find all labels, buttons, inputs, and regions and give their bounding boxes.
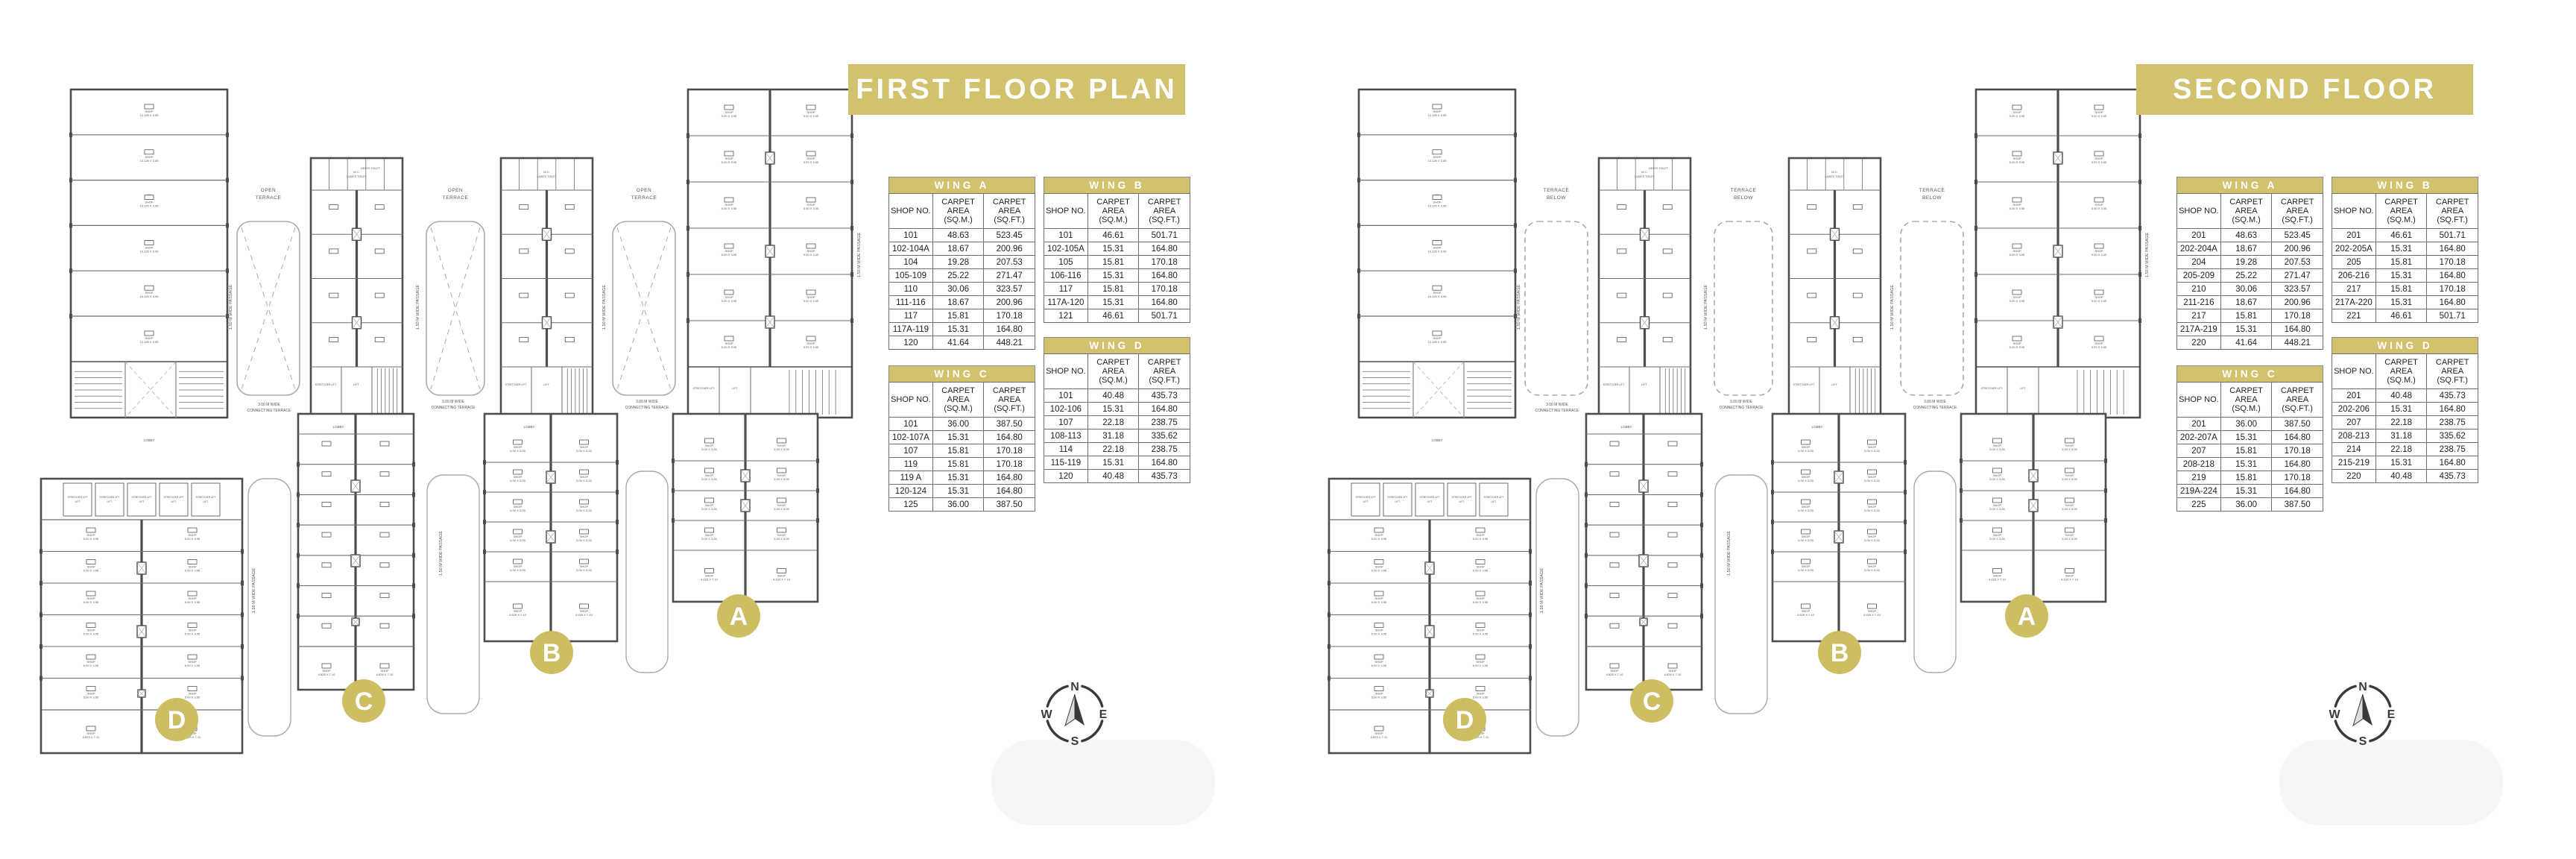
svg-text:OPEN: OPEN: [637, 188, 651, 193]
shop-cell: 271.47: [984, 269, 1035, 283]
svg-text:5.00 X 3.05: 5.00 X 3.05: [2092, 299, 2107, 303]
svg-text:5.00 X 3.05: 5.00 X 3.05: [185, 569, 201, 573]
shop-cell: 15.31: [2375, 296, 2427, 309]
svg-text:5.00 X 3.05: 5.00 X 3.05: [83, 664, 99, 667]
svg-text:5.00 X 3.05: 5.00 X 3.05: [185, 537, 201, 541]
shop-cell: 238.75: [1139, 443, 1190, 456]
svg-text:STRETCHER LIFT: STRETCHER LIFT: [164, 496, 184, 499]
column-header: CARPET AREA (SQ.M.): [932, 383, 984, 418]
svg-text:3.00 M WIDE: 3.00 M WIDE: [636, 400, 658, 404]
shop-cell: 117: [889, 309, 933, 323]
shop-cell: 219: [2177, 471, 2221, 485]
column-header: CARPET AREA (SQ.M.): [1087, 194, 1139, 229]
wing-b-table: WING BSHOP NO.CARPET AREA (SQ.M.)CARPET …: [2332, 177, 2478, 323]
column-header: CARPET AREA (SQ.FT.): [2272, 383, 2323, 418]
shop-cell: 501.71: [2427, 309, 2478, 323]
shop-cell: 15.31: [2220, 458, 2272, 471]
shop-cell: 217: [2177, 309, 2221, 323]
svg-text:4.625 X 7.10: 4.625 X 7.10: [1664, 673, 1682, 676]
shop-row: 202-204A18.67200.96: [2177, 242, 2323, 256]
wing-c-table: WING CSHOP NO.CARPET AREA (SQ.M.)CARPET …: [2176, 365, 2323, 512]
svg-text:5.00 X 3.05: 5.00 X 3.05: [576, 449, 592, 453]
shop-cell: 221: [2332, 309, 2376, 323]
shop-cell: 164.80: [984, 431, 1035, 444]
shop-cell: 200.96: [2272, 296, 2323, 309]
shop-row: 10515.81170.18: [1044, 256, 1190, 269]
shop-cell: 164.80: [2427, 403, 2478, 416]
shop-row: 202-207A15.31164.80: [2177, 431, 2323, 444]
svg-text:D: D: [1456, 706, 1474, 734]
svg-text:TERRACE: TERRACE: [1919, 188, 1945, 193]
column-header: SHOP NO.: [2332, 194, 2376, 229]
shop-cell: 211-216: [2177, 296, 2221, 309]
shop-cell: 15.31: [1087, 296, 1139, 309]
shop-cell: 18.67: [932, 296, 984, 309]
shop-cell: 164.80: [984, 323, 1035, 336]
shop-cell: 30.06: [932, 283, 984, 296]
shop-cell: 19.28: [932, 256, 984, 269]
shop-row: 119 A15.31164.80: [889, 471, 1035, 485]
shop-cell: 238.75: [2427, 443, 2478, 456]
svg-text:S: S: [2359, 735, 2367, 748]
svg-text:A: A: [730, 602, 748, 631]
svg-text:STRETCHER LIFT: STRETCHER LIFT: [196, 496, 216, 499]
svg-text:10.125 X 3.05: 10.125 X 3.05: [1428, 159, 1448, 163]
svg-text:1.50 M WIDE PASSAGE: 1.50 M WIDE PASSAGE: [602, 285, 607, 330]
svg-text:5.00 X 3.05: 5.00 X 3.05: [774, 477, 789, 481]
shop-row: 20419.28207.53: [2177, 256, 2323, 269]
svg-text:5.00 X 3.05: 5.00 X 3.05: [1864, 538, 1880, 542]
shop-cell: 201: [2177, 229, 2221, 242]
shop-cell: 22.18: [1087, 416, 1139, 429]
svg-text:TERRACE: TERRACE: [1544, 188, 1570, 193]
shop-row: 12041.64448.21: [889, 336, 1035, 350]
shop-row: 20148.63523.45: [2177, 229, 2323, 242]
shop-cell: 110: [889, 283, 933, 296]
svg-text:5.00 X 3.05: 5.00 X 3.05: [1989, 447, 2005, 451]
column-header: CARPET AREA (SQ.FT.): [2427, 354, 2478, 389]
svg-text:5.00 X 3.05: 5.00 X 3.05: [774, 447, 789, 451]
shop-row: 102-107A15.31164.80: [889, 431, 1035, 444]
svg-text:TERRACE: TERRACE: [443, 195, 469, 201]
svg-text:5.00 X 3.05: 5.00 X 3.05: [2092, 114, 2107, 118]
svg-text:5.00 X 3.05: 5.00 X 3.05: [804, 345, 819, 349]
shop-row: 11715.81170.18: [1044, 283, 1190, 296]
shop-cell: 164.80: [2427, 456, 2478, 470]
shop-cell: 501.71: [2427, 229, 2478, 242]
shop-row: 21915.81170.18: [2177, 471, 2323, 485]
column-header: SHOP NO.: [889, 383, 933, 418]
svg-text:5.00 X 3.05: 5.00 X 3.05: [510, 449, 525, 453]
svg-text:LIFT: LIFT: [107, 500, 113, 503]
wing-table-title: WING D: [1044, 337, 1190, 353]
shop-cell: 164.80: [1139, 269, 1190, 283]
shop-cell: 115-119: [1044, 456, 1088, 470]
shop-cell: 15.31: [1087, 403, 1139, 416]
svg-text:5.00 X 3.05: 5.00 X 3.05: [722, 299, 737, 303]
svg-text:LOBBY: LOBBY: [523, 425, 534, 429]
shop-cell: 208-213: [2332, 429, 2376, 443]
wing-marker: D: [1443, 698, 1486, 741]
shop-cell: 170.18: [2427, 283, 2478, 296]
shop-row: 217A-21915.31164.80: [2177, 323, 2323, 336]
shop-cell: 207: [2177, 444, 2221, 458]
shop-row: 10140.48435.73: [1044, 389, 1190, 403]
shop-row: 21715.81170.18: [2177, 309, 2323, 323]
shop-cell: 107: [1044, 416, 1088, 429]
shop-cell: 107: [889, 444, 933, 458]
shop-cell: 501.71: [1139, 229, 1190, 242]
shop-cell: 435.73: [1139, 470, 1190, 483]
svg-text:5.00 X 3.05: 5.00 X 3.05: [722, 114, 737, 118]
svg-text:10.125 X 3.05: 10.125 X 3.05: [140, 249, 160, 253]
shop-cell: 164.80: [1139, 456, 1190, 470]
svg-text:5.00 X 3.05: 5.00 X 3.05: [2092, 345, 2107, 349]
shop-cell: 164.80: [2427, 269, 2478, 283]
svg-text:LIFT: LIFT: [1427, 500, 1433, 503]
shop-row: 20140.48435.73: [2332, 389, 2478, 403]
svg-text:A: A: [2018, 602, 2036, 631]
shop-cell: 40.48: [2375, 470, 2427, 483]
svg-text:4.625 X 7.10: 4.625 X 7.10: [1989, 578, 2006, 582]
shop-row: 10419.28207.53: [889, 256, 1035, 269]
svg-text:5.00 X 3.05: 5.00 X 3.05: [1798, 509, 1813, 512]
shop-row: 208-21815.31164.80: [2177, 458, 2323, 471]
shop-cell: 170.18: [2272, 471, 2323, 485]
svg-text:4.625 X 7.10: 4.625 X 7.10: [575, 613, 593, 617]
svg-text:4.625 X 7.10: 4.625 X 7.10: [376, 673, 394, 676]
shop-cell: 202-207A: [2177, 431, 2221, 444]
shop-cell: 387.50: [2272, 418, 2323, 431]
shop-cell: 15.31: [2220, 323, 2272, 336]
svg-text:3.00 M WIDE: 3.00 M WIDE: [258, 403, 280, 407]
shop-cell: 102-105A: [1044, 242, 1088, 256]
svg-text:STRETCHER LIFT: STRETCHER LIFT: [1603, 383, 1625, 386]
column-header: CARPET AREA (SQ.M.): [932, 194, 984, 229]
shop-cell: 31.18: [1087, 429, 1139, 443]
svg-text:LIFT: LIFT: [1459, 500, 1465, 503]
shop-row: 202-20615.31164.80: [2332, 403, 2478, 416]
shop-row: 102-10615.31164.80: [1044, 403, 1190, 416]
svg-text:5.00 X 3.05: 5.00 X 3.05: [804, 299, 819, 303]
svg-text:5.00 X 3.05: 5.00 X 3.05: [722, 345, 737, 349]
column-header: SHOP NO.: [2177, 383, 2221, 418]
svg-text:W.C.: W.C.: [1641, 170, 1648, 174]
svg-text:1.50 M WIDE PASSAGE: 1.50 M WIDE PASSAGE: [2145, 233, 2150, 277]
svg-text:CONNECTING TERRACE: CONNECTING TERRACE: [625, 406, 669, 410]
shop-cell: 36.00: [932, 498, 984, 512]
shop-cell: 214: [2332, 443, 2376, 456]
shop-row: 10722.18238.75: [1044, 416, 1190, 429]
svg-text:CONNECTING TERRACE: CONNECTING TERRACE: [247, 409, 291, 413]
svg-text:1.50 M WIDE PASSAGE: 1.50 M WIDE PASSAGE: [1517, 285, 1521, 330]
svg-text:5.00 X 3.05: 5.00 X 3.05: [2010, 207, 2025, 210]
svg-text:1.50 M WIDE PASSAGE: 1.50 M WIDE PASSAGE: [1704, 285, 1708, 330]
svg-text:LADIES TOILET: LADIES TOILET: [1635, 175, 1655, 178]
svg-text:1.50 M WIDE PASSAGE: 1.50 M WIDE PASSAGE: [1540, 568, 1544, 613]
svg-text:LOBBY: LOBBY: [1431, 438, 1442, 442]
shop-row: 117A-11915.31164.80: [889, 323, 1035, 336]
shop-cell: 18.67: [2220, 296, 2272, 309]
svg-text:E: E: [2387, 708, 2396, 721]
wing-marker: A: [717, 594, 760, 638]
shop-cell: 215-219: [2332, 456, 2376, 470]
shop-row: 20515.81170.18: [2332, 256, 2478, 269]
shop-cell: 335.62: [2427, 429, 2478, 443]
svg-text:5.00 X 3.05: 5.00 X 3.05: [1371, 569, 1387, 573]
shop-row: 117A-12015.31164.80: [1044, 296, 1190, 309]
svg-text:5.00 X 3.05: 5.00 X 3.05: [510, 538, 525, 542]
svg-text:LIFT: LIFT: [1363, 500, 1368, 503]
shop-cell: 101: [889, 418, 933, 431]
shop-cell: 435.73: [2427, 470, 2478, 483]
shop-cell: 448.21: [2272, 336, 2323, 350]
shop-cell: 202-205A: [2332, 242, 2376, 256]
shop-cell: 170.18: [1139, 256, 1190, 269]
svg-text:5.00 X 3.05: 5.00 X 3.05: [2062, 477, 2077, 481]
shop-cell: 210: [2177, 283, 2221, 296]
svg-text:5.00 X 3.05: 5.00 X 3.05: [185, 664, 201, 667]
shop-cell: 387.50: [984, 498, 1035, 512]
shop-cell: 164.80: [2272, 431, 2323, 444]
shop-row: 10146.61501.71: [1044, 229, 1190, 242]
column-header: CARPET AREA (SQ.M.): [2375, 354, 2427, 389]
svg-text:5.00 X 3.05: 5.00 X 3.05: [1371, 600, 1387, 604]
svg-text:LIFT: LIFT: [139, 500, 145, 503]
shop-cell: 207.53: [984, 256, 1035, 269]
svg-text:W: W: [2329, 708, 2340, 721]
svg-text:5.00 X 3.05: 5.00 X 3.05: [510, 509, 525, 512]
svg-text:CONNECTING TERRACE: CONNECTING TERRACE: [1535, 409, 1579, 413]
svg-text:5.00 X 3.05: 5.00 X 3.05: [185, 696, 201, 699]
svg-text:STRETCHER LIFT: STRETCHER LIFT: [1452, 496, 1472, 499]
svg-text:5.00 X 3.05: 5.00 X 3.05: [1989, 507, 2005, 511]
svg-text:LIFT: LIFT: [1831, 383, 1837, 386]
shop-cell: 200.96: [984, 296, 1035, 309]
shop-cell: 102-106: [1044, 403, 1088, 416]
svg-text:10.125 X 3.05: 10.125 X 3.05: [1428, 113, 1448, 117]
shop-cell: 15.31: [2220, 485, 2272, 498]
svg-text:5.00 X 3.05: 5.00 X 3.05: [774, 537, 789, 541]
shop-cell: 106-116: [1044, 269, 1088, 283]
svg-text:4.625 X 7.10: 4.625 X 7.10: [1606, 673, 1623, 676]
shop-cell: 18.67: [932, 242, 984, 256]
shop-cell: 15.81: [2220, 471, 2272, 485]
shop-cell: 205: [2332, 256, 2376, 269]
svg-text:C: C: [1643, 687, 1661, 716]
shop-cell: 170.18: [2272, 309, 2323, 323]
svg-text:1.50 M WIDE PASSAGE: 1.50 M WIDE PASSAGE: [416, 285, 420, 330]
column-header: CARPET AREA (SQ.M.): [2220, 194, 2272, 229]
shop-cell: 15.31: [2220, 431, 2272, 444]
svg-text:S: S: [1071, 735, 1079, 748]
shop-cell: 46.61: [1087, 309, 1139, 323]
shop-cell: 36.00: [2220, 418, 2272, 431]
shop-cell: 448.21: [984, 336, 1035, 350]
wing-d-table: WING DSHOP NO.CARPET AREA (SQ.M.)CARPET …: [2332, 337, 2478, 483]
wing-a-table: WING ASHOP NO.CARPET AREA (SQ.M.)CARPET …: [888, 177, 1035, 350]
svg-text:LADIES TOILET: LADIES TOILET: [1825, 175, 1845, 178]
shop-row: 20146.61501.71: [2332, 229, 2478, 242]
shop-cell: 201: [2177, 418, 2221, 431]
svg-text:STRETCHER LIFT: STRETCHER LIFT: [68, 496, 88, 499]
svg-text:5.00 X 3.05: 5.00 X 3.05: [1473, 664, 1489, 667]
svg-text:10.125 X 3.05: 10.125 X 3.05: [1428, 340, 1448, 344]
shop-cell: 102-107A: [889, 431, 933, 444]
shop-cell: 120: [1044, 470, 1088, 483]
svg-text:LOBBY: LOBBY: [143, 438, 154, 442]
svg-text:LOBBY: LOBBY: [332, 425, 344, 429]
svg-text:5.00 X 3.05: 5.00 X 3.05: [2062, 447, 2077, 451]
shop-cell: 271.47: [2272, 269, 2323, 283]
shop-cell: 164.80: [1139, 296, 1190, 309]
shop-row: 11422.18238.75: [1044, 443, 1190, 456]
shop-cell: 220: [2332, 470, 2376, 483]
shop-cell: 323.57: [984, 283, 1035, 296]
svg-text:5.00 X 3.05: 5.00 X 3.05: [2010, 253, 2025, 257]
wing-c-table: WING CSHOP NO.CARPET AREA (SQ.M.)CARPET …: [888, 365, 1035, 512]
shop-cell: 217A-219: [2177, 323, 2221, 336]
svg-text:4.625 X 7.10: 4.625 X 7.10: [1371, 735, 1388, 739]
shop-cell: 323.57: [2272, 283, 2323, 296]
shop-cell: 15.81: [2220, 309, 2272, 323]
svg-text:E: E: [1099, 708, 1108, 721]
shop-cell: 119 A: [889, 471, 933, 485]
svg-text:5.00 X 3.05: 5.00 X 3.05: [722, 207, 737, 210]
shop-cell: 219A-224: [2177, 485, 2221, 498]
svg-text:W.C.: W.C.: [543, 170, 550, 174]
svg-text:LOBBY: LOBBY: [1620, 425, 1632, 429]
svg-text:LIFT: LIFT: [543, 383, 549, 386]
shop-cell: 46.61: [2375, 229, 2427, 242]
column-header: CARPET AREA (SQ.FT.): [984, 194, 1035, 229]
svg-text:TERRACE: TERRACE: [1731, 188, 1757, 193]
shop-cell: 164.80: [984, 471, 1035, 485]
shop-cell: 120: [889, 336, 933, 350]
shop-cell: 104: [889, 256, 933, 269]
column-header: SHOP NO.: [2177, 194, 2221, 229]
svg-text:5.00 X 3.05: 5.00 X 3.05: [1989, 477, 2005, 481]
shop-cell: 15.31: [932, 323, 984, 336]
svg-text:5.00 X 3.05: 5.00 X 3.05: [722, 160, 737, 164]
shop-row: 206-21615.31164.80: [2332, 269, 2478, 283]
shop-cell: 40.48: [1087, 470, 1139, 483]
svg-text:OPEN: OPEN: [261, 188, 276, 193]
shop-row: 22041.64448.21: [2177, 336, 2323, 350]
svg-text:10.125 X 3.05: 10.125 X 3.05: [1428, 204, 1448, 208]
svg-text:5.00 X 3.05: 5.00 X 3.05: [1371, 632, 1387, 636]
shop-row: 217A-22015.31164.80: [2332, 296, 2478, 309]
svg-text:LIFT: LIFT: [2020, 387, 2026, 390]
svg-text:5.00 X 3.05: 5.00 X 3.05: [1989, 537, 2005, 541]
shop-cell: 15.81: [932, 458, 984, 471]
svg-text:STRETCHER LIFT: STRETCHER LIFT: [693, 387, 715, 390]
shop-row: 21715.81170.18: [2332, 283, 2478, 296]
shop-cell: 111-116: [889, 296, 933, 309]
shop-cell: 238.75: [2427, 416, 2478, 429]
wing-marker: D: [155, 698, 198, 741]
svg-text:10.125 X 3.05: 10.125 X 3.05: [1428, 249, 1448, 253]
svg-text:4.625 X 7.10: 4.625 X 7.10: [701, 578, 718, 582]
shop-row: 20722.18238.75: [2332, 416, 2478, 429]
column-header: SHOP NO.: [889, 194, 933, 229]
shop-row: 215-21915.31164.80: [2332, 456, 2478, 470]
svg-text:5.00 X 3.05: 5.00 X 3.05: [2010, 114, 2025, 118]
shop-row: 105-10925.22271.47: [889, 269, 1035, 283]
shop-cell: 164.80: [2272, 458, 2323, 471]
shop-row: 115-11915.31164.80: [1044, 456, 1190, 470]
shop-row: 22146.61501.71: [2332, 309, 2478, 323]
svg-text:5.00 X 3.05: 5.00 X 3.05: [2010, 160, 2025, 164]
shop-row: 120-12415.31164.80: [889, 485, 1035, 498]
wing-b-table: WING BSHOP NO.CARPET AREA (SQ.M.)CARPET …: [1044, 177, 1190, 323]
shop-cell: 15.31: [1087, 456, 1139, 470]
shop-cell: 108-113: [1044, 429, 1088, 443]
shop-cell: 19.28: [2220, 256, 2272, 269]
svg-text:5.00 X 3.05: 5.00 X 3.05: [1371, 664, 1387, 667]
svg-text:5.00 X 3.05: 5.00 X 3.05: [576, 538, 592, 542]
svg-text:LIFT: LIFT: [1491, 500, 1497, 503]
svg-text:CONNECTING TERRACE: CONNECTING TERRACE: [1913, 406, 1957, 410]
wing-table-title: WING C: [888, 365, 1035, 382]
svg-text:1.50 M WIDE PASSAGE: 1.50 M WIDE PASSAGE: [1890, 285, 1895, 330]
wing-marker: B: [530, 631, 573, 674]
shop-cell: 22.18: [2375, 416, 2427, 429]
svg-text:5.00 X 3.05: 5.00 X 3.05: [83, 696, 99, 699]
svg-text:STRETCHER LIFT: STRETCHER LIFT: [1981, 387, 2003, 390]
svg-text:LIFT: LIFT: [732, 387, 738, 390]
shop-cell: 200.96: [984, 242, 1035, 256]
wing-marker: B: [1818, 631, 1861, 674]
svg-text:5.00 X 3.05: 5.00 X 3.05: [701, 447, 717, 451]
shop-row: 12536.00387.50: [889, 498, 1035, 512]
svg-text:LIFT: LIFT: [75, 500, 80, 503]
svg-text:1.50 M WIDE PASSAGE: 1.50 M WIDE PASSAGE: [252, 568, 256, 613]
shop-cell: 117: [1044, 283, 1088, 296]
shop-cell: 48.63: [2220, 229, 2272, 242]
svg-text:TERRACE: TERRACE: [631, 195, 657, 201]
svg-text:10.125 X 3.05: 10.125 X 3.05: [140, 204, 160, 208]
svg-text:1.50 M WIDE PASSAGE: 1.50 M WIDE PASSAGE: [857, 233, 862, 277]
shop-cell: 25.22: [932, 269, 984, 283]
shop-row: 106-11615.31164.80: [1044, 269, 1190, 283]
svg-text:CONNECTING TERRACE: CONNECTING TERRACE: [1720, 406, 1764, 410]
svg-text:5.00 X 3.05: 5.00 X 3.05: [1864, 479, 1880, 482]
svg-text:LIFT: LIFT: [1395, 500, 1401, 503]
shop-cell: 101: [1044, 389, 1088, 403]
svg-text:W: W: [1041, 708, 1052, 721]
svg-text:5.00 X 3.05: 5.00 X 3.05: [2092, 160, 2107, 164]
shop-cell: 238.75: [1139, 416, 1190, 429]
wing-marker: C: [342, 679, 385, 723]
shop-cell: 207.53: [2272, 256, 2323, 269]
floor-plan-sheet: SHOP10.125 X 3.05SHOP10.125 X 3.05SHOP10…: [0, 0, 2576, 859]
shop-cell: 48.63: [932, 229, 984, 242]
svg-text:4.625 X 7.10: 4.625 X 7.10: [83, 735, 100, 739]
shop-cell: 46.61: [1087, 229, 1139, 242]
svg-text:W.C.: W.C.: [353, 170, 360, 174]
svg-text:1.50 M WIDE PASSAGE: 1.50 M WIDE PASSAGE: [1727, 531, 1731, 576]
shop-cell: 120-124: [889, 485, 933, 498]
shop-row: 205-20925.22271.47: [2177, 269, 2323, 283]
svg-text:4.625 X 7.10: 4.625 X 7.10: [1863, 613, 1881, 617]
column-header: CARPET AREA (SQ.FT.): [984, 383, 1035, 418]
shop-cell: 30.06: [2220, 283, 2272, 296]
svg-text:D: D: [168, 706, 186, 734]
svg-text:5.00 X 3.05: 5.00 X 3.05: [1864, 449, 1880, 453]
shop-row: 12040.48435.73: [1044, 470, 1190, 483]
svg-text:1.50 M WIDE PASSAGE: 1.50 M WIDE PASSAGE: [439, 531, 443, 576]
